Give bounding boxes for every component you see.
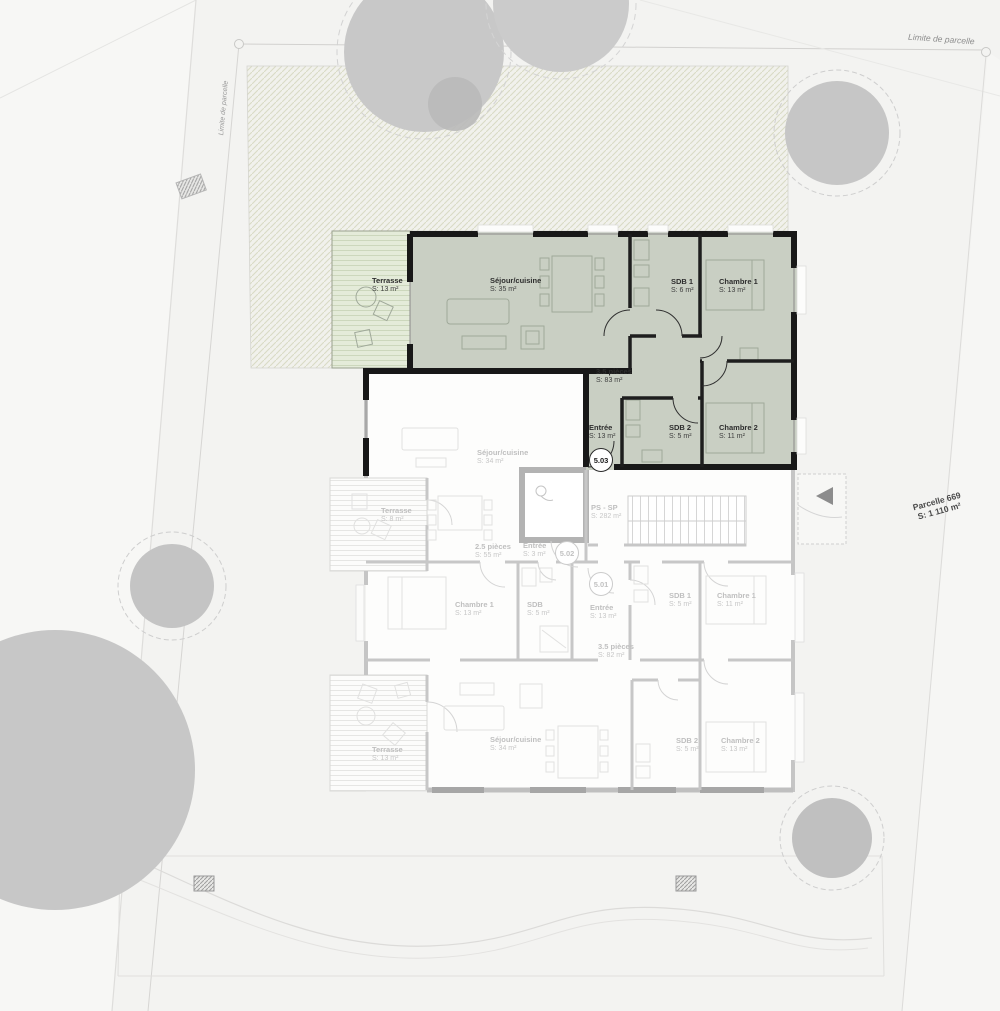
terrace-501 [330,675,427,791]
unit-badge-501[interactable]: 5.01 [589,572,613,596]
room-label-501-chambre2: Chambre 2 S: 13 m² [721,736,760,754]
floor-plan-page: Limite de parcelle Limite de parcelle Pa… [0,0,1000,1011]
room-label-502-sejour: Séjour/cuisine S: 34 m² [477,448,528,466]
room-label-503-chambre2: Chambre 2 S: 11 m² [719,423,758,441]
tree-icon [428,77,482,131]
building-entrance [798,474,846,544]
room-label-501-sejour: Séjour/cuisine S: 34 m² [490,735,541,753]
room-label-503-sdb2: SDB 2 S: 5 m² [669,423,692,441]
common-area-label: PS - SP S: 282 m² [591,503,621,521]
balcony-502 [330,478,427,571]
floor-plan-canvas [0,0,1000,1011]
tree-icon [792,798,872,878]
unit-type-label-501: 3.5 pièces S: 82 m² [598,642,634,660]
boundary-marker-icon [235,40,244,49]
unit-badge-503[interactable]: 5.03 [589,448,613,472]
room-label-501-terrasse: Terrasse S: 13 m² [372,745,403,763]
room-label-502-chambre1: Chambre 1 S: 13 m² [455,600,494,618]
room-label-502-sdb: SDB S: 5 m² [527,600,550,618]
grate-icon [676,876,696,891]
room-label-501-entree: Entrée S: 13 m² [590,603,616,621]
room-label-503-sdb1: SDB 1 S: 6 m² [671,277,694,295]
tree-icon [130,544,214,628]
elevator [522,470,586,540]
room-label-503-chambre1: Chambre 1 S: 13 m² [719,277,758,295]
room-label-503-entree: Entrée S: 13 m² [589,423,615,441]
staircase [628,496,746,546]
room-label-502-terrasse: Terrasse S: 8 m² [381,506,412,524]
unit-type-label-503: 3.5 pièces S: 83 m² [596,367,632,385]
terrace-503 [332,231,410,368]
unit-badge-502[interactable]: 5.02 [555,541,579,565]
boundary-marker-icon [982,48,991,57]
room-label-503-terrasse: Terrasse S: 13 m² [372,276,403,294]
room-label-501-sdb1: SDB 1 S: 5 m² [669,591,692,609]
room-label-502-entree: Entrée S: 3 m² [523,541,546,559]
room-label-501-chambre1: Chambre 1 S: 11 m² [717,591,756,609]
grate-icon [194,876,214,891]
room-label-503-sejour: Séjour/cuisine S: 35 m² [490,276,541,294]
tree-icon [785,81,889,185]
room-label-501-sdb2: SDB 2 S: 5 m² [676,736,699,754]
unit-type-label-502: 2.5 pièces S: 55 m² [475,542,511,560]
